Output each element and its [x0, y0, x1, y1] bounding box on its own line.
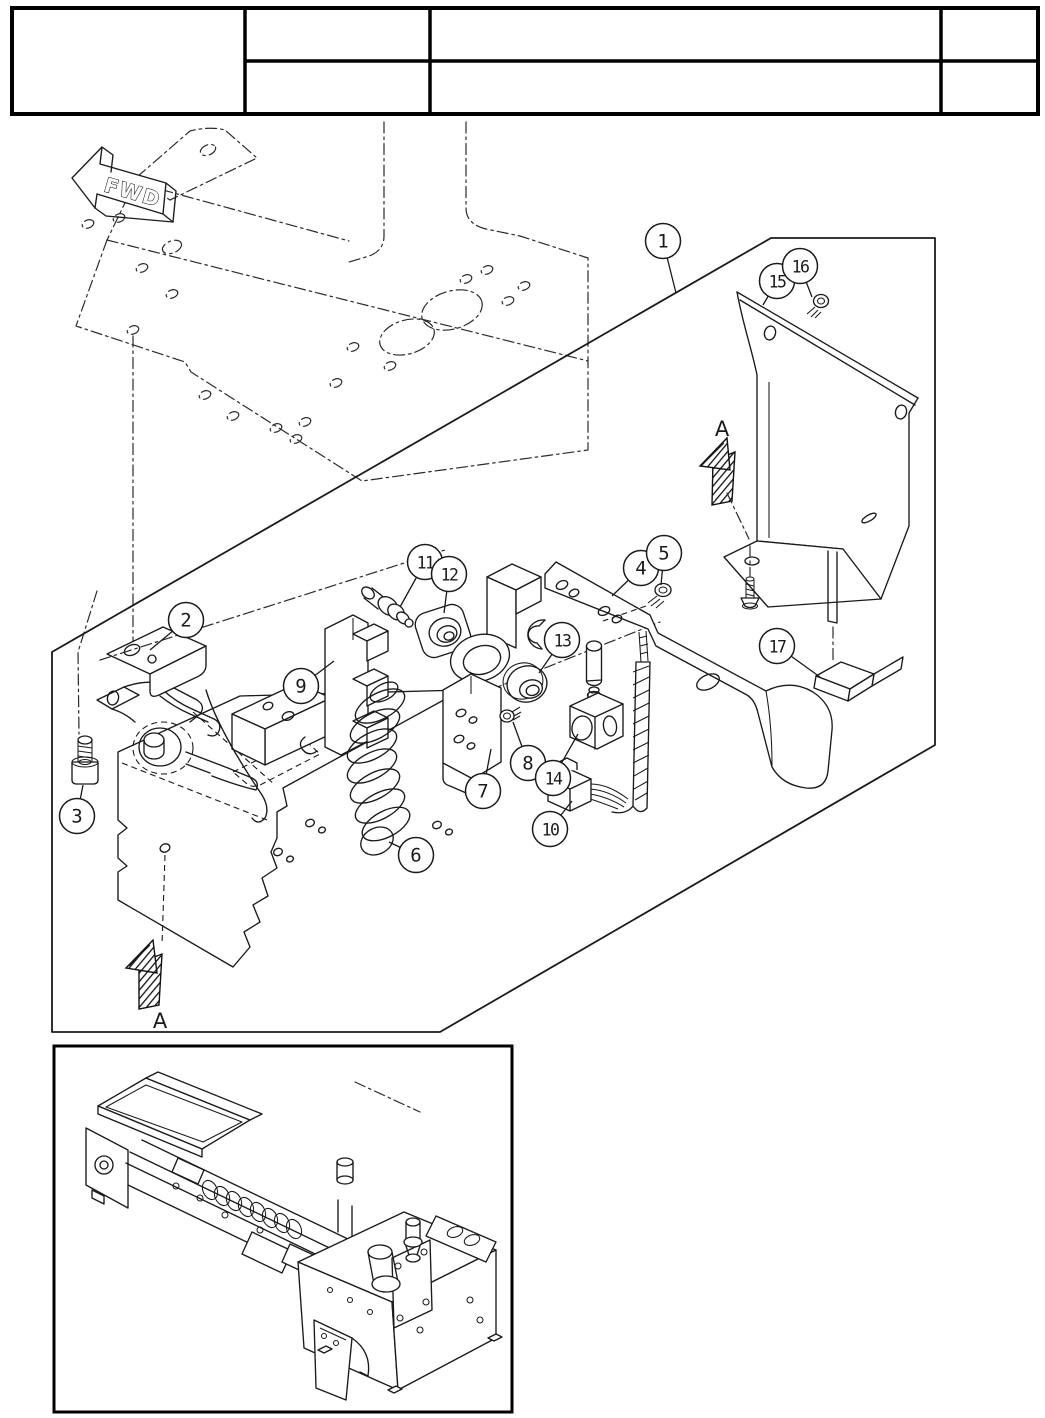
callout-number-13: 13 [554, 632, 571, 651]
part-14-solenoid [570, 641, 623, 749]
part-8-screw [500, 707, 521, 722]
view-a-arrow-lower: A [126, 940, 168, 1033]
manual-page: FWD [0, 0, 1045, 1418]
callout-number-5: 5 [658, 543, 669, 565]
part-9-guide-block [325, 615, 388, 755]
callout-number-10: 10 [542, 821, 559, 840]
callout-number-15: 15 [769, 273, 786, 292]
callout-10: 10 [533, 801, 573, 847]
callout-number-6: 6 [410, 845, 421, 867]
view-a-label-lower: A [153, 1009, 168, 1033]
part-16-screw [807, 295, 829, 319]
table-cell-r2c3 [430, 61, 941, 114]
callout-number-9: 9 [295, 676, 306, 698]
fwd-direction-arrow: FWD [72, 147, 176, 222]
callout-number-1: 1 [657, 231, 668, 253]
assembled-unit-inset [86, 1072, 502, 1400]
table-cell-r2c2 [245, 61, 430, 114]
callout-number-3: 3 [71, 806, 82, 828]
callout-1: 1 [646, 224, 681, 294]
callout-number-8: 8 [522, 753, 533, 775]
callout-number-7: 7 [477, 781, 488, 803]
part-13-washer [499, 658, 551, 706]
part-11-fitting [359, 585, 413, 627]
view-a-label-upper: A [715, 417, 730, 441]
table-cell-left [12, 8, 245, 114]
view-a-arrow-upper: A [700, 417, 749, 539]
part-3-screw [72, 736, 98, 784]
callout-number-14: 14 [545, 770, 563, 789]
callout-13: 13 [539, 623, 580, 674]
callout-6: 6 [389, 838, 434, 873]
callout-number-2: 2 [180, 610, 191, 632]
table-cell-r1c2 [245, 8, 430, 61]
callout-3: 3 [60, 785, 95, 834]
callout-number-4: 4 [635, 558, 646, 580]
header-table [12, 8, 1038, 114]
callout-17: 17 [760, 629, 821, 678]
part-17-wedge [814, 657, 903, 701]
table-cell-r1c3 [430, 8, 941, 61]
callout-number-12: 12 [441, 566, 458, 585]
callout-number-17: 17 [769, 638, 786, 657]
callout-number-16: 16 [792, 258, 809, 277]
table-cell-r1c4 [941, 8, 1038, 61]
table-cell-r2c4 [941, 61, 1038, 114]
